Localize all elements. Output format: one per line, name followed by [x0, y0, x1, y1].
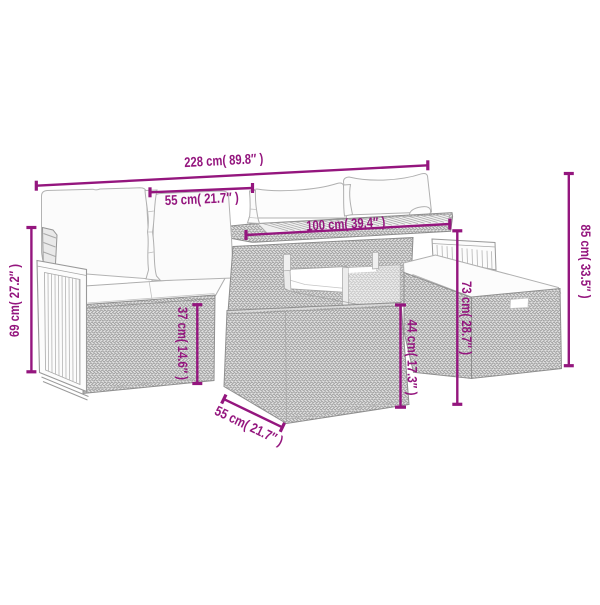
- svg-text:85 cm( 33.5″ ): 85 cm( 33.5″ ): [578, 225, 594, 299]
- svg-text:73 cm( 28.7″ ): 73 cm( 28.7″ ): [459, 281, 475, 355]
- svg-text:44 cm( 17.3″ ): 44 cm( 17.3″ ): [405, 320, 421, 396]
- svg-text:69 cm( 27.2″ ): 69 cm( 27.2″ ): [6, 264, 22, 337]
- svg-text:37 cm( 14.6″ ): 37 cm( 14.6″ ): [175, 307, 191, 380]
- svg-text:55 cm( 21.7″ ): 55 cm( 21.7″ ): [164, 189, 239, 208]
